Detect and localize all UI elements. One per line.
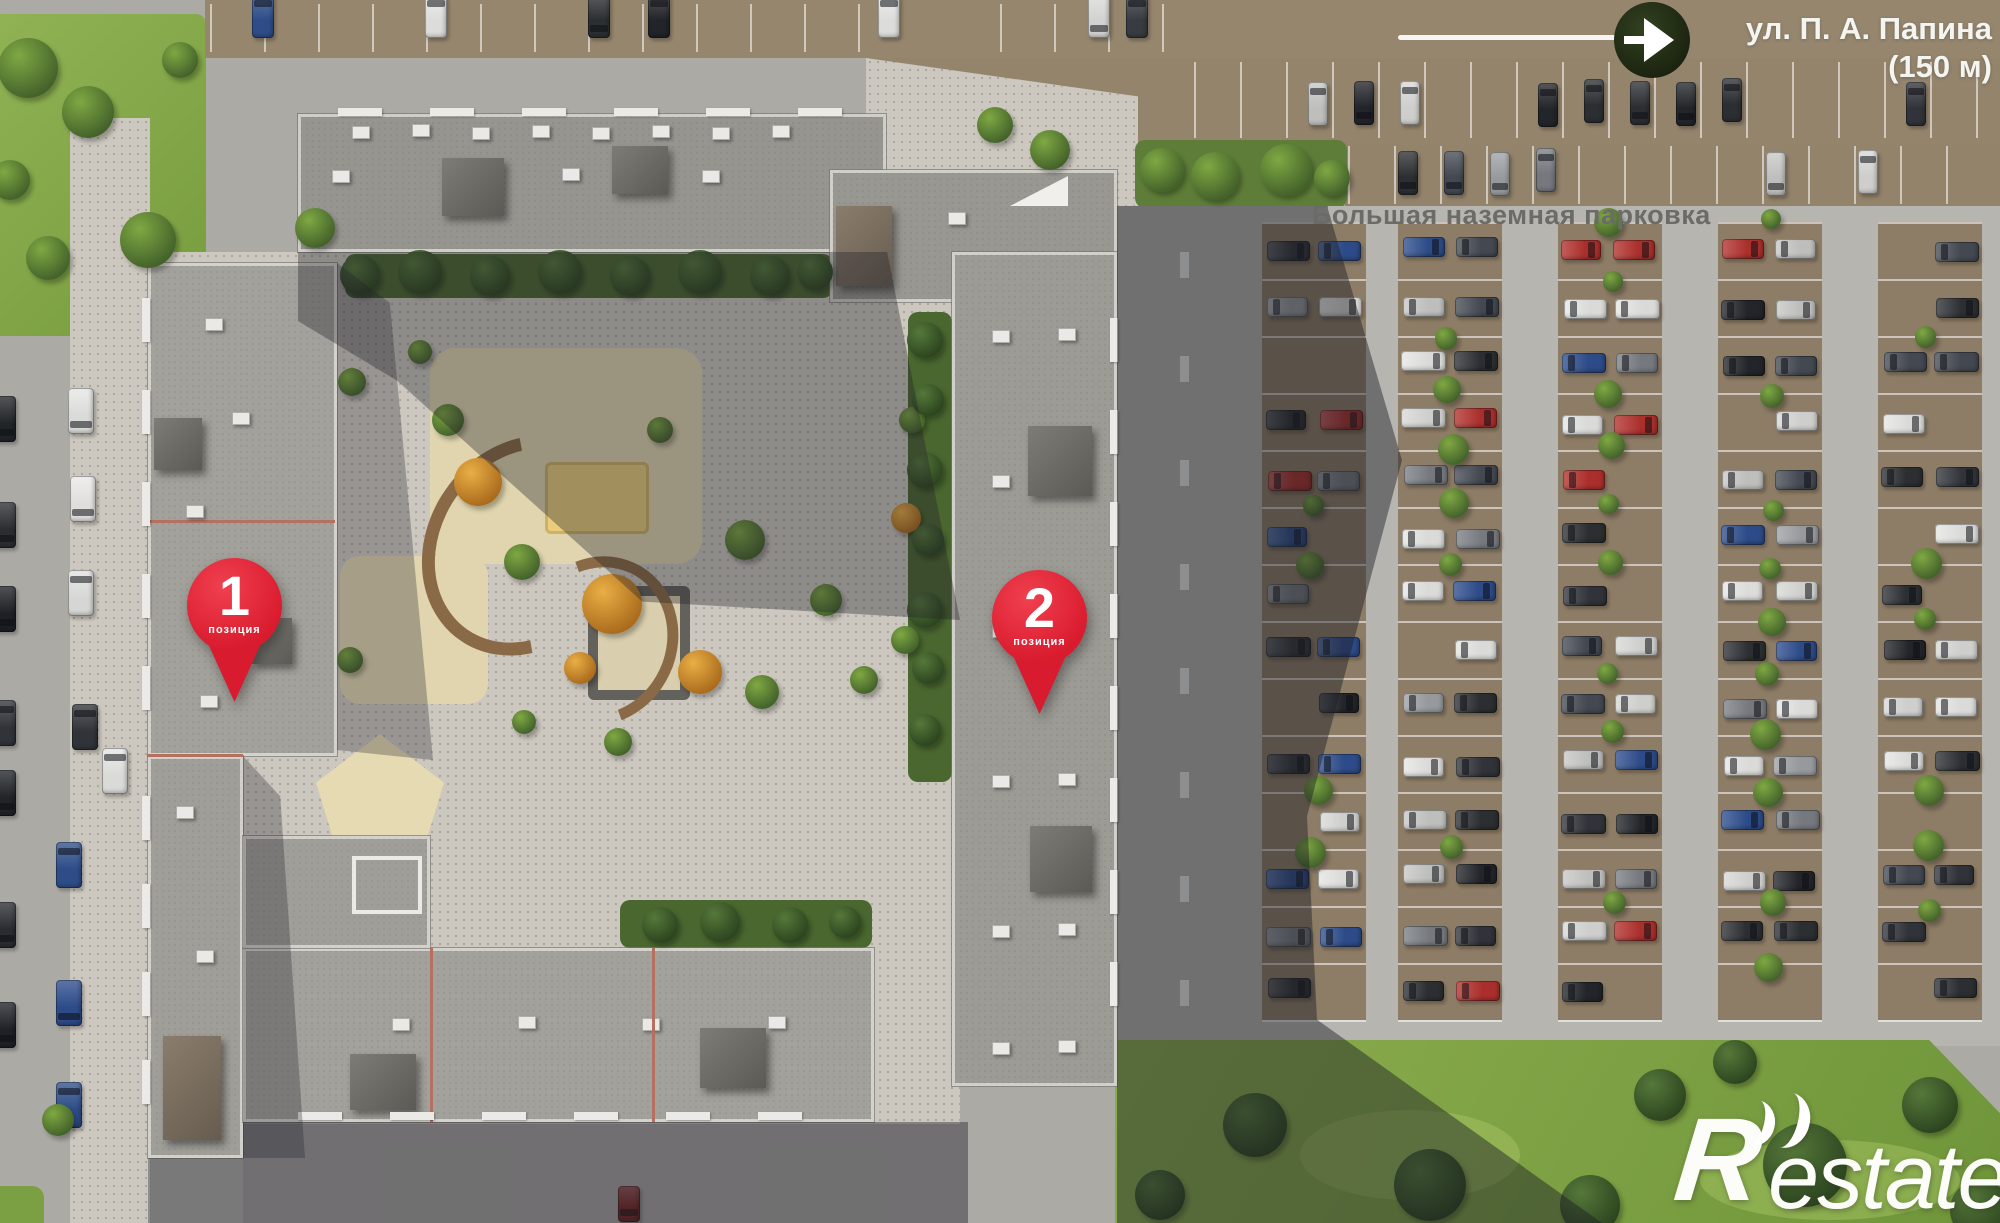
car-windshield xyxy=(1324,243,1331,259)
car xyxy=(1455,297,1498,317)
car-windshield xyxy=(1568,525,1575,541)
tree-icon xyxy=(1296,552,1323,579)
stall-line xyxy=(1398,1020,1502,1022)
car-windshield xyxy=(1569,588,1576,604)
tree-icon xyxy=(1713,1040,1757,1084)
car-windshield xyxy=(1324,756,1331,772)
car-windshield xyxy=(620,1209,638,1216)
car-windshield xyxy=(1632,112,1648,119)
road-marking xyxy=(1180,668,1189,694)
car-windshield xyxy=(1586,85,1602,92)
roof-ac-unit xyxy=(592,127,610,140)
car xyxy=(1564,299,1607,319)
car-windshield xyxy=(1593,871,1600,887)
balcony xyxy=(1110,502,1118,546)
car xyxy=(0,1002,16,1048)
car-windshield xyxy=(1940,867,1947,883)
car-windshield xyxy=(1678,113,1694,120)
tree-icon xyxy=(700,902,740,942)
roof-ac-unit xyxy=(232,412,250,425)
tree-icon xyxy=(797,254,833,290)
car xyxy=(1403,864,1445,884)
car-windshield xyxy=(1966,469,1973,485)
car-windshield xyxy=(1782,812,1789,828)
car xyxy=(1456,237,1498,257)
tree-icon xyxy=(912,524,944,556)
car xyxy=(252,0,274,38)
car-windshield xyxy=(1431,759,1438,775)
car xyxy=(1721,810,1764,830)
car-windshield xyxy=(1090,25,1108,32)
car-windshield xyxy=(1727,302,1734,318)
tree-icon xyxy=(1759,558,1781,580)
stall-line xyxy=(1854,146,1856,204)
car xyxy=(1456,529,1501,549)
car-windshield xyxy=(1435,928,1442,944)
car xyxy=(1403,926,1448,946)
car-windshield xyxy=(1782,413,1789,429)
tree-icon xyxy=(295,208,335,248)
tree-icon xyxy=(1755,662,1779,686)
road-marking xyxy=(1180,980,1189,1006)
car-windshield xyxy=(1890,354,1897,370)
stall-line xyxy=(1808,146,1810,204)
balcony xyxy=(142,972,150,1016)
pin-number: 1 xyxy=(187,566,282,626)
car-windshield xyxy=(1940,980,1947,996)
tree-icon xyxy=(678,250,722,294)
balcony xyxy=(522,108,566,116)
roof-ac-unit xyxy=(412,124,430,137)
roof-structure xyxy=(442,158,504,216)
road-marking xyxy=(1180,564,1189,590)
stall-line xyxy=(1000,4,1002,52)
car-windshield xyxy=(1779,758,1786,774)
car xyxy=(1722,581,1763,601)
stall-line xyxy=(1486,146,1488,204)
car xyxy=(1883,697,1923,717)
car xyxy=(1456,981,1500,1001)
car xyxy=(1454,693,1497,713)
tree-icon xyxy=(1594,380,1622,408)
tree-icon xyxy=(850,666,878,694)
car xyxy=(1562,869,1607,889)
tree-icon xyxy=(454,458,502,506)
car-windshield xyxy=(1433,410,1440,426)
car xyxy=(1935,640,1978,660)
car xyxy=(1774,921,1817,941)
car-windshield xyxy=(1346,871,1353,887)
car-windshield xyxy=(1753,873,1760,889)
car-windshield xyxy=(1350,412,1357,428)
tree-icon xyxy=(338,368,366,396)
car xyxy=(1563,470,1605,490)
street-label-line1: ул. П. А. Папина xyxy=(1540,10,1992,48)
tree-icon xyxy=(1260,144,1312,196)
car xyxy=(1935,242,1978,262)
roof-structure xyxy=(612,146,668,194)
car xyxy=(1400,81,1420,125)
car-windshield xyxy=(1804,643,1811,659)
car-windshield xyxy=(1588,242,1595,258)
stall-line xyxy=(1398,906,1502,908)
roof-structure xyxy=(652,948,655,1122)
stall-line xyxy=(1398,621,1502,623)
car-windshield xyxy=(1888,924,1895,940)
car-windshield xyxy=(1804,472,1811,488)
roof-structure xyxy=(352,856,422,914)
pin-caption: позиция xyxy=(187,624,282,636)
car xyxy=(1402,581,1444,601)
tree-icon xyxy=(1597,663,1618,684)
balcony xyxy=(1110,594,1118,638)
car xyxy=(1444,151,1464,195)
roof-structure xyxy=(836,206,892,286)
car xyxy=(1562,353,1606,373)
balcony xyxy=(142,390,150,434)
tree-icon xyxy=(647,417,673,443)
car-windshield xyxy=(1802,873,1809,889)
car xyxy=(0,902,16,948)
car xyxy=(1721,921,1763,941)
car xyxy=(1319,693,1360,713)
roof-structure xyxy=(1028,426,1092,496)
car-windshield xyxy=(1909,587,1916,603)
balcony xyxy=(142,482,150,526)
road-marking xyxy=(1180,356,1189,382)
balcony xyxy=(758,1112,802,1120)
car-windshield xyxy=(1538,154,1554,161)
car-windshield xyxy=(1462,239,1469,255)
balcony xyxy=(706,108,750,116)
car xyxy=(1883,414,1925,434)
car-windshield xyxy=(1486,299,1493,315)
tree-icon xyxy=(1754,953,1783,982)
car xyxy=(1882,922,1926,942)
car xyxy=(1453,581,1496,601)
tree-icon xyxy=(1433,376,1461,404)
roof-ac-unit xyxy=(205,318,223,331)
car xyxy=(1773,871,1815,891)
balcony xyxy=(1110,318,1118,362)
car xyxy=(0,586,16,632)
balcony xyxy=(1110,686,1118,730)
tree-icon xyxy=(610,256,650,296)
pin-caption: позиция xyxy=(992,636,1087,648)
roof-structure xyxy=(350,1054,416,1110)
watermark-logo: R estate xyxy=(1676,1104,2000,1223)
stall-line xyxy=(1398,735,1502,737)
car-windshield xyxy=(1568,984,1575,1000)
car-windshield xyxy=(0,803,14,810)
roof-ac-unit xyxy=(948,212,966,225)
car-windshield xyxy=(1483,583,1490,599)
tree-icon xyxy=(1030,130,1070,170)
marker-position-2[interactable]: 2 позиция xyxy=(992,570,1087,716)
car xyxy=(1268,978,1311,998)
car xyxy=(1456,757,1501,777)
car xyxy=(1614,415,1658,435)
car xyxy=(1934,978,1977,998)
tree-icon xyxy=(470,256,510,296)
car xyxy=(1615,299,1659,319)
car xyxy=(1935,697,1977,717)
stall-line xyxy=(1878,279,1982,281)
tree-icon xyxy=(564,652,596,684)
car-windshield xyxy=(1806,527,1813,543)
tree-icon xyxy=(1753,778,1782,807)
car-windshield xyxy=(1967,753,1974,769)
balcony xyxy=(338,108,382,116)
stall-line xyxy=(1878,507,1982,509)
car xyxy=(1490,152,1510,196)
car xyxy=(1616,814,1658,834)
car xyxy=(618,1186,640,1222)
car-windshield xyxy=(1492,183,1508,190)
car xyxy=(1723,641,1766,661)
car-windshield xyxy=(1591,752,1598,768)
roof-ac-unit xyxy=(392,1018,410,1031)
stall-line xyxy=(1332,62,1334,138)
roof-structure xyxy=(1030,826,1092,892)
car-windshield xyxy=(1346,695,1353,711)
car-windshield xyxy=(1908,88,1924,95)
car-windshield xyxy=(1644,871,1651,887)
tree-icon xyxy=(1560,1175,1620,1223)
tree-icon xyxy=(1303,495,1324,516)
car xyxy=(1320,812,1361,832)
car-windshield xyxy=(1487,531,1494,547)
roof-ac-unit xyxy=(712,127,730,140)
car xyxy=(1456,864,1497,884)
balcony xyxy=(390,1112,434,1120)
car xyxy=(1267,527,1307,547)
car xyxy=(1454,465,1498,485)
stall-line xyxy=(750,4,752,52)
car xyxy=(1723,356,1764,376)
stall-line xyxy=(1398,792,1502,794)
car xyxy=(1403,810,1447,830)
stall-line xyxy=(1262,279,1366,281)
tree-icon xyxy=(1598,550,1622,574)
car xyxy=(1722,239,1764,259)
car xyxy=(1538,83,1558,127)
car-windshield xyxy=(1941,244,1948,260)
car xyxy=(1776,525,1819,545)
tree-icon xyxy=(909,714,941,746)
stall-line xyxy=(1424,62,1426,138)
car-windshield xyxy=(1296,871,1303,887)
balcony xyxy=(142,884,150,928)
car-windshield xyxy=(1298,639,1305,655)
car-windshield xyxy=(1889,867,1896,883)
car xyxy=(1773,756,1816,776)
car xyxy=(1563,586,1607,606)
car xyxy=(1723,871,1767,891)
car-windshield xyxy=(74,710,96,717)
car xyxy=(1934,352,1979,372)
stall-line xyxy=(1878,222,1982,224)
road-marking xyxy=(1180,252,1189,278)
roof-ac-unit xyxy=(1058,1040,1076,1053)
car-windshield xyxy=(1753,643,1760,659)
car xyxy=(1403,981,1444,1001)
car xyxy=(1936,298,1979,318)
tree-icon xyxy=(26,236,70,280)
car-windshield xyxy=(0,619,14,626)
car-windshield xyxy=(0,429,14,436)
car-windshield xyxy=(1460,695,1467,711)
roof-ac-unit xyxy=(186,505,204,518)
car-windshield xyxy=(1409,695,1416,711)
car-windshield xyxy=(58,848,80,855)
car-windshield xyxy=(1485,353,1492,369)
car-windshield xyxy=(1567,696,1574,712)
car xyxy=(1398,151,1418,195)
car xyxy=(1766,152,1786,196)
tree-icon xyxy=(1914,608,1936,630)
car xyxy=(1615,636,1658,656)
car-windshield xyxy=(1347,814,1354,830)
car-windshield xyxy=(1409,812,1416,828)
car xyxy=(1402,529,1444,549)
car-windshield xyxy=(1941,642,1948,658)
car xyxy=(70,476,96,522)
road-marking xyxy=(1180,460,1189,486)
tree-icon xyxy=(829,906,861,938)
car-windshield xyxy=(1128,0,1146,7)
stall-line xyxy=(1516,62,1518,138)
tree-icon xyxy=(912,652,944,684)
car-windshield xyxy=(58,1088,80,1095)
car-windshield xyxy=(1589,638,1596,654)
tree-icon xyxy=(120,212,176,268)
car xyxy=(1126,0,1148,38)
balcony xyxy=(142,1060,150,1104)
car xyxy=(1561,694,1604,714)
tree-icon xyxy=(1435,327,1458,350)
car-windshield xyxy=(1803,302,1810,318)
car-windshield xyxy=(1432,866,1439,882)
car-windshield xyxy=(70,576,92,583)
stall-line xyxy=(1718,336,1822,338)
tree-icon xyxy=(1603,271,1623,291)
stall-line xyxy=(1670,146,1672,204)
stall-line xyxy=(534,4,536,52)
tree-icon xyxy=(642,907,678,943)
car xyxy=(1724,756,1765,776)
car xyxy=(878,0,900,38)
car-windshield xyxy=(1887,469,1894,485)
tree-icon xyxy=(750,256,790,296)
car-windshield xyxy=(1645,417,1652,433)
stall-line xyxy=(1262,906,1366,908)
stall-line xyxy=(1900,146,1902,204)
stall-line xyxy=(1162,4,1164,52)
car-windshield xyxy=(1294,529,1301,545)
roof-ac-unit xyxy=(992,1042,1010,1055)
car-windshield xyxy=(1433,353,1440,369)
roof-structure xyxy=(430,948,433,1122)
car-windshield xyxy=(1568,923,1575,939)
car xyxy=(1721,300,1765,320)
tree-icon xyxy=(1911,548,1942,579)
car-windshield xyxy=(1805,583,1812,599)
car xyxy=(1616,353,1658,373)
stall-line xyxy=(1262,963,1366,965)
tree-icon xyxy=(337,647,363,673)
car xyxy=(1317,637,1360,657)
car-windshield xyxy=(1293,412,1300,428)
balcony xyxy=(142,666,150,710)
stall-line xyxy=(1716,146,1718,204)
balcony xyxy=(298,1112,342,1120)
car xyxy=(1354,81,1374,125)
tree-icon xyxy=(408,340,432,364)
tree-icon xyxy=(1140,148,1184,192)
car-windshield xyxy=(1484,410,1491,426)
car xyxy=(0,396,16,442)
car-windshield xyxy=(1727,527,1734,543)
balcony xyxy=(798,108,842,116)
car-windshield xyxy=(1461,812,1468,828)
car-windshield xyxy=(1730,758,1737,774)
roof-ac-unit xyxy=(196,950,214,963)
car xyxy=(1884,751,1925,771)
balcony xyxy=(614,108,658,116)
tree-icon xyxy=(504,544,540,580)
roof-ac-unit xyxy=(176,806,194,819)
car-windshield xyxy=(1913,642,1920,658)
car-windshield xyxy=(1432,239,1439,255)
roof-structure xyxy=(700,1028,766,1088)
roof-ac-unit xyxy=(992,330,1010,343)
car xyxy=(1935,751,1979,771)
car xyxy=(1404,465,1448,485)
roof-ac-unit xyxy=(992,775,1010,788)
tree-icon xyxy=(398,250,442,294)
tree-icon xyxy=(891,626,919,654)
car xyxy=(1266,869,1309,889)
marker-position-1[interactable]: 1 позиция xyxy=(187,558,282,704)
stall-line xyxy=(1578,146,1580,204)
stall-line xyxy=(1624,146,1626,204)
car xyxy=(1401,408,1445,428)
car-windshield xyxy=(1645,816,1652,832)
car-windshield xyxy=(1485,467,1492,483)
car-windshield xyxy=(1966,526,1973,542)
stall-line xyxy=(1398,963,1502,965)
car-windshield xyxy=(1323,473,1330,489)
car-windshield xyxy=(1940,354,1947,370)
car xyxy=(1403,757,1443,777)
stall-line xyxy=(1878,393,1982,395)
roof-ac-unit xyxy=(1058,773,1076,786)
car xyxy=(1536,148,1556,192)
tree-icon xyxy=(1439,488,1469,518)
tree-icon xyxy=(725,520,765,560)
car xyxy=(1455,926,1496,946)
stall-line xyxy=(1054,4,1056,52)
tree-icon xyxy=(907,592,943,628)
car-windshield xyxy=(70,421,92,428)
stall-line xyxy=(1558,1020,1662,1022)
car xyxy=(1776,641,1817,661)
car-windshield xyxy=(1782,701,1789,717)
stall-line xyxy=(1718,279,1822,281)
car-windshield xyxy=(1326,929,1333,945)
car-windshield xyxy=(1297,756,1304,772)
